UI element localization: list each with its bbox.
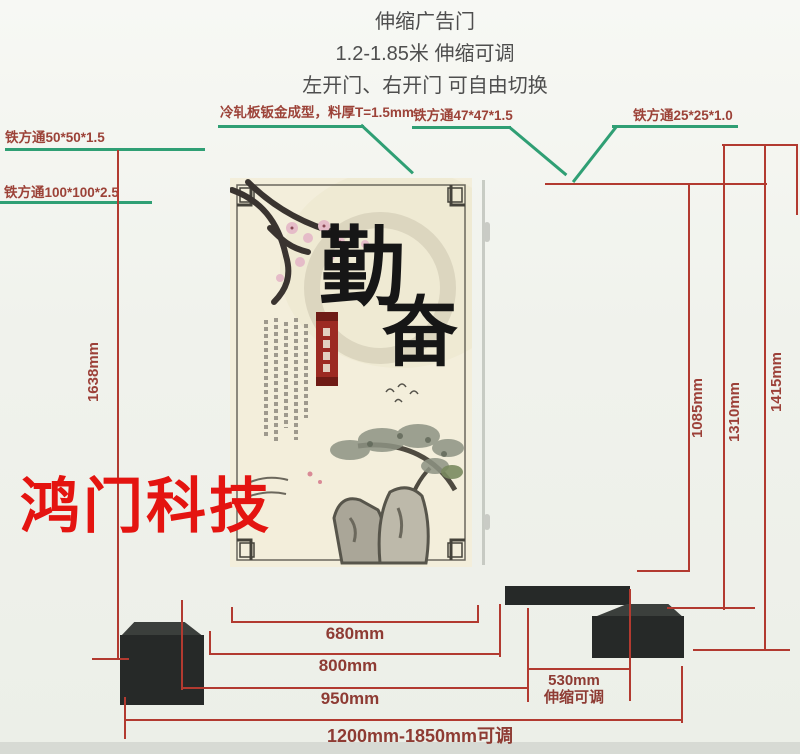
- page-subtitle-range: 1.2-1.85米 伸缩可调: [270, 38, 580, 70]
- dimension-label-1310: 1310mm: [726, 377, 746, 447]
- dimension-line-680: [231, 621, 479, 623]
- callout-label-square-tube-50: 铁方通50*50*1.5: [5, 126, 105, 146]
- dimension-line-530: [527, 668, 631, 670]
- dimension-label-680: 680mm: [300, 624, 410, 644]
- callout-label-cold-rolled-panel: 冷轧板钣金成型，料厚T=1.5mm: [220, 101, 414, 121]
- dimension-label-530-group: 530mm 伸缩可调: [528, 672, 620, 706]
- left-pillar-base: [120, 635, 204, 705]
- dimension-tick-1085-bottom: [637, 570, 690, 572]
- dimension-label-1415: 1415mm: [768, 347, 788, 417]
- dimension-tick-530-right: [629, 589, 631, 701]
- dimension-label-530-note: 伸缩可调: [528, 689, 620, 706]
- callout-line-panel: [218, 125, 364, 128]
- dimension-tick-800-right: [499, 604, 501, 657]
- dimension-line-total-range: [124, 719, 683, 721]
- dimension-line-1415: [764, 145, 766, 650]
- dimension-label-1638: 1638mm: [85, 337, 105, 407]
- door-handle-bottom: [484, 514, 490, 530]
- header-text: 伸缩广告门 1.2-1.85米 伸缩可调 左开门、右开门 可自由切换: [270, 6, 580, 102]
- dimension-tick-top-145: [722, 144, 798, 146]
- motor-housing: [130, 58, 212, 144]
- dimension-tick-top-183: [545, 183, 767, 185]
- dimension-tick-680-right: [477, 605, 479, 623]
- page-subtitle-direction: 左开门、右开门 可自由切换: [270, 70, 580, 102]
- dimension-line-1310: [723, 145, 725, 610]
- telescope-bar-47: [508, 168, 528, 590]
- dimension-line-1638: [117, 150, 119, 660]
- dimension-tick-range-right: [681, 666, 683, 723]
- red-seal-banner: [316, 312, 338, 386]
- callout-label-square-tube-25: 铁方通25*25*1.0: [633, 104, 733, 124]
- dimension-tick-1310-bottom: [667, 607, 755, 609]
- dimension-tick-range-left: [124, 697, 126, 739]
- dimension-tick-1638-bottom: [92, 658, 129, 660]
- callout-label-square-tube-100: 铁方通100*100*2.5: [4, 181, 119, 201]
- dimension-line-800: [209, 653, 501, 655]
- right-pillar-base: [592, 616, 684, 658]
- dimension-label-1085: 1085mm: [689, 373, 709, 443]
- right-pillar: [627, 138, 668, 612]
- dimension-tick-950-left: [181, 600, 183, 690]
- dimension-label-530: 530mm: [528, 672, 620, 689]
- product-diagram: 伸缩广告门 1.2-1.85米 伸缩可调 左开门、右开门 可自由切换: [0, 0, 800, 754]
- callout-label-square-tube-47: 铁方通47*47*1.5: [413, 104, 513, 124]
- telescope-bar-25: [560, 168, 586, 590]
- calligraphy-char-fen: 奋: [382, 288, 458, 377]
- callout-line-100: [0, 201, 152, 204]
- dimension-tick-680-left: [231, 607, 233, 623]
- callout-line-47: [412, 126, 511, 129]
- dimension-label-800: 800mm: [293, 656, 403, 676]
- dimension-label-950: 950mm: [295, 689, 405, 709]
- dimension-line-right-edge: [796, 145, 798, 215]
- callout-line-50: [5, 148, 205, 151]
- door-handle-top: [484, 222, 490, 242]
- dimension-tick-1415-bottom: [693, 649, 790, 651]
- left-pillar: [134, 140, 184, 624]
- dimension-label-total-range: 1200mm-1850mm可调: [305, 722, 535, 748]
- dimension-tick-800-left: [209, 631, 211, 655]
- page-title: 伸缩广告门: [270, 6, 580, 38]
- watermark-text: 鸿门科技: [20, 458, 272, 545]
- callout-line-25: [612, 125, 738, 128]
- telescope-bottom-rail: [505, 586, 630, 605]
